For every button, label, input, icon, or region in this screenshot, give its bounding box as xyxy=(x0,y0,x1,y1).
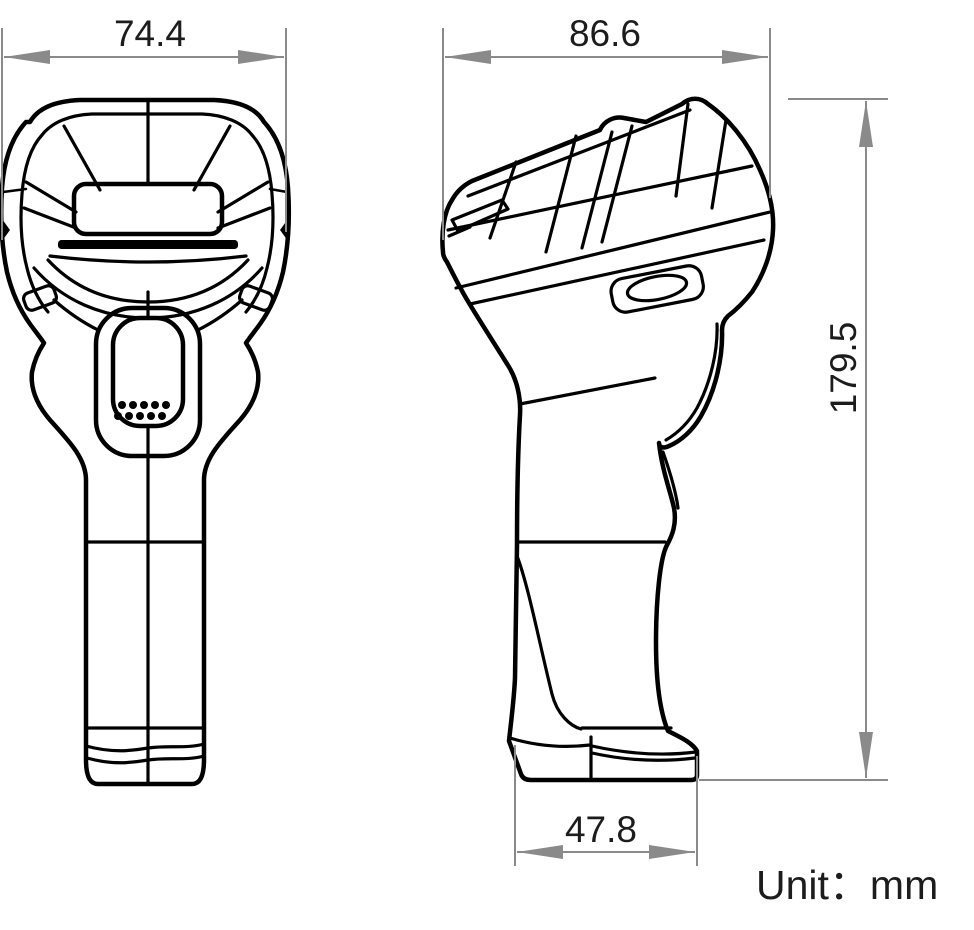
side-view xyxy=(442,99,773,780)
arrow-up-icon xyxy=(859,101,873,147)
front-left-notch xyxy=(2,219,10,241)
unit-label: Unit：mm xyxy=(756,862,938,908)
dim-front-width-value: 74.4 xyxy=(114,13,186,54)
side-silhouette xyxy=(442,99,773,780)
side-handle-lines xyxy=(517,378,665,729)
dim-side-depth-value: 86.6 xyxy=(569,13,641,54)
side-base-lines xyxy=(510,728,696,780)
side-trigger-inner xyxy=(666,324,717,440)
front-scan-window xyxy=(74,184,222,234)
front-window-bar xyxy=(58,240,238,249)
arrow-right-icon xyxy=(722,50,768,64)
dimension-side-depth: 86.6 xyxy=(443,13,770,240)
arrow-right-icon xyxy=(649,845,695,859)
front-window-frame-bottom xyxy=(50,256,246,262)
dim-base-depth-value: 47.8 xyxy=(565,809,637,850)
front-side-ticks xyxy=(3,189,287,192)
dimension-drawing-page: 74.4 86.6 179.5 47.8 Unit：mm xyxy=(0,0,974,930)
front-silhouette xyxy=(1,100,289,784)
arrow-right-icon xyxy=(238,50,284,64)
arrow-left-icon xyxy=(445,50,491,64)
arrow-down-icon xyxy=(859,732,873,778)
front-view xyxy=(1,100,289,784)
arrow-left-icon xyxy=(517,845,563,859)
dimension-base-depth: 47.8 xyxy=(515,745,697,866)
front-trigger-pad xyxy=(113,318,183,426)
front-base-waves xyxy=(86,744,204,763)
scanner-dimension-diagram: 74.4 86.6 179.5 47.8 Unit：mm xyxy=(0,0,974,930)
dimension-overall-height: 179.5 xyxy=(699,99,888,780)
dim-overall-height-value: 179.5 xyxy=(823,322,864,415)
arrow-left-icon xyxy=(4,50,50,64)
front-handle-lines xyxy=(86,542,204,728)
